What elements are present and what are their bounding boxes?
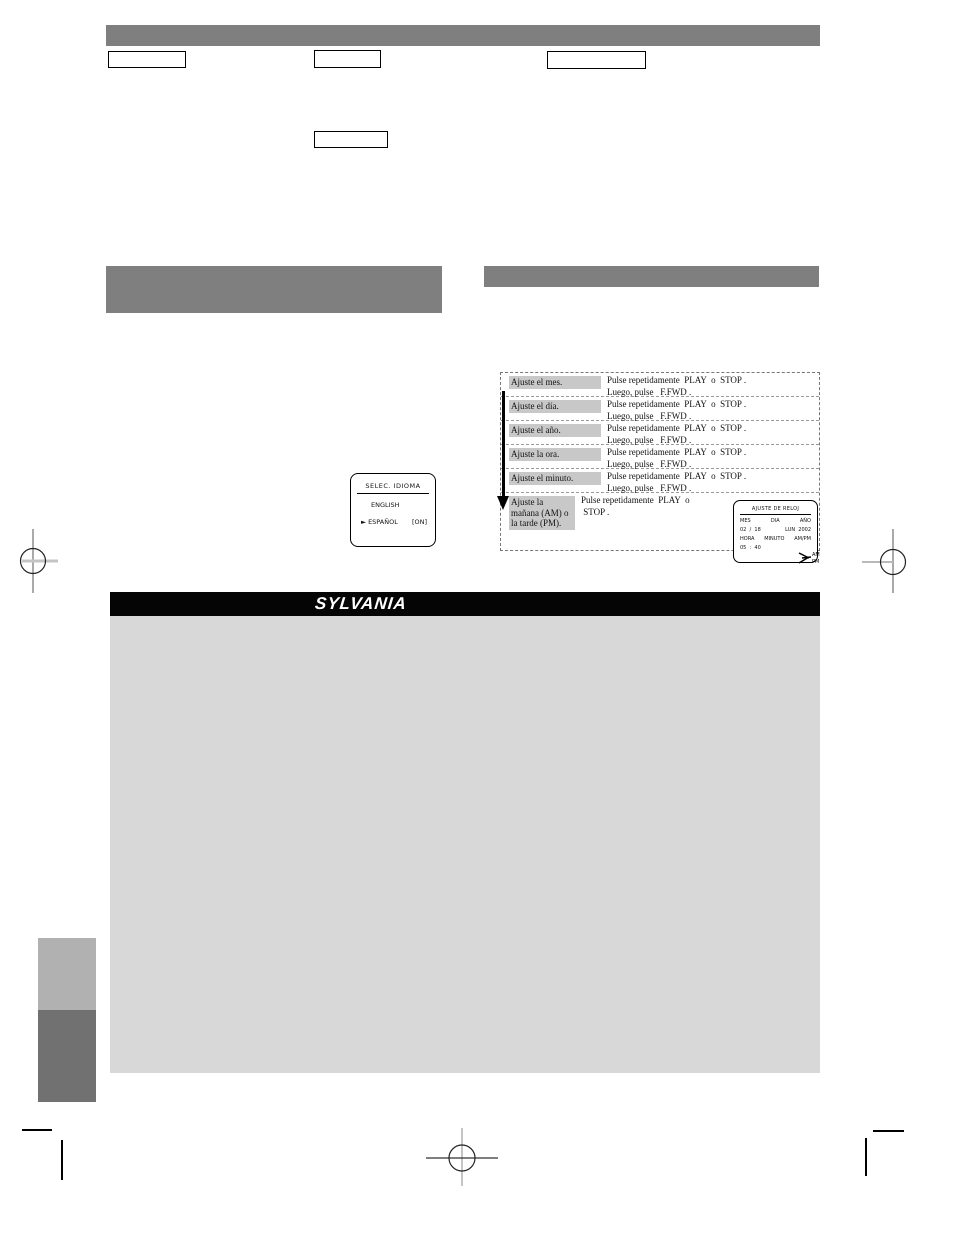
registration-mark-bottom bbox=[424, 1126, 500, 1188]
side-tab-dark bbox=[38, 1010, 96, 1102]
step-instruction: Pulse repetidamente PLAY o STOP . bbox=[581, 493, 690, 550]
crop-mark-bottom-right-h bbox=[873, 1130, 904, 1132]
section-bar-left bbox=[106, 266, 442, 313]
espanol-on-status: [ON] bbox=[412, 518, 427, 526]
clock-set-osd: AJUSTE DE RELOJ MESDIAAÑO 02 / 18LUN 200… bbox=[733, 500, 818, 563]
brand-bar: SYLVANIA bbox=[110, 592, 820, 616]
table-row: Ajuste el año. Pulse repetidamente PLAY … bbox=[501, 421, 819, 445]
osd-title: SELEC. IDIOMA bbox=[351, 482, 435, 490]
header-placeholder-box-1 bbox=[108, 51, 186, 68]
language-select-osd: SELEC. IDIOMA ENGLISH ► ESPAÑOL [ON] bbox=[350, 473, 436, 547]
step-instruction: Pulse repetidamente PLAY o STOP .Luego, … bbox=[607, 445, 746, 468]
language-option-espanol: ► ESPAÑOL bbox=[361, 518, 398, 526]
crop-mark-bottom-right-v bbox=[865, 1138, 867, 1176]
language-option-espanol-row: ► ESPAÑOL [ON] bbox=[361, 518, 427, 526]
header-placeholder-box-3 bbox=[547, 51, 646, 69]
crop-mark-bottom-left-h bbox=[22, 1129, 52, 1131]
table-row: Ajuste el mes. Pulse repetidamente PLAY … bbox=[501, 373, 819, 397]
sequence-arrow bbox=[502, 391, 505, 497]
sequence-arrow-head-icon bbox=[497, 496, 509, 510]
step-label: Ajuste la ora. bbox=[509, 448, 601, 461]
content-panel bbox=[110, 616, 820, 1073]
language-option-english: ENGLISH bbox=[371, 501, 435, 509]
table-row: Ajuste el minuto. Pulse repetidamente PL… bbox=[501, 469, 819, 493]
crop-mark-bottom-left-v bbox=[61, 1140, 63, 1180]
ampm-selector: AM PM bbox=[785, 545, 811, 557]
step-instruction: Pulse repetidamente PLAY o STOP .Luego, … bbox=[607, 421, 746, 444]
step-instruction: Pulse repetidamente PLAY o STOP .Luego, … bbox=[607, 469, 746, 492]
clock-date-labels: MESDIAAÑO bbox=[734, 518, 817, 524]
osd-title-rule bbox=[740, 514, 811, 515]
table-row: Ajuste el día. Pulse repetidamente PLAY … bbox=[501, 397, 819, 421]
sylvania-logo: SYLVANIA bbox=[314, 592, 408, 616]
step-label: Ajuste la mañana (AM) o la tarde (PM). bbox=[509, 496, 575, 530]
osd-title-rule bbox=[357, 493, 429, 494]
table-row: Ajuste la ora. Pulse repetidamente PLAY … bbox=[501, 445, 819, 469]
top-header-bar bbox=[106, 25, 820, 46]
clock-date-values: 02 / 18LUN 2002 bbox=[734, 527, 817, 533]
step-label: Ajuste el año. bbox=[509, 424, 601, 437]
step-instruction: Pulse repetidamente PLAY o STOP .Luego, … bbox=[607, 373, 746, 396]
section-bar-right bbox=[484, 266, 819, 287]
header-placeholder-box-4 bbox=[314, 131, 388, 148]
manual-page: Ajuste el mes. Pulse repetidamente PLAY … bbox=[0, 0, 954, 1235]
osd-title: AJUSTE DE RELOJ bbox=[734, 506, 817, 512]
step-label: Ajuste el mes. bbox=[509, 376, 601, 389]
registration-mark-left bbox=[12, 529, 62, 593]
ampm-starburst-icon: AM PM bbox=[798, 551, 824, 564]
step-label: Ajuste el día. bbox=[509, 400, 601, 413]
step-instruction: Pulse repetidamente PLAY o STOP .Luego, … bbox=[607, 397, 746, 420]
registration-mark-right bbox=[858, 529, 908, 593]
header-placeholder-box-2 bbox=[314, 50, 381, 68]
svg-text:PM: PM bbox=[812, 559, 819, 564]
step-label: Ajuste el minuto. bbox=[509, 472, 601, 485]
clock-time-labels: HORAMINUTOAM/PM bbox=[734, 536, 817, 542]
clock-time-values: 05 : 40 AM PM bbox=[734, 545, 817, 557]
svg-text:AM: AM bbox=[812, 552, 820, 558]
side-tab-light bbox=[38, 938, 96, 1010]
